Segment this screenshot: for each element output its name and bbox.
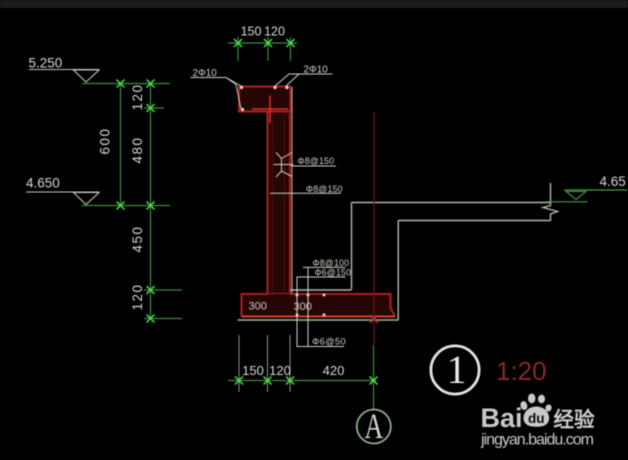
svg-text:A: A [364,406,383,446]
svg-text:120: 120 [264,25,285,39]
svg-text:150: 150 [241,25,262,39]
svg-text:5.250: 5.250 [29,56,63,71]
svg-text:120: 120 [130,283,145,310]
svg-text:450: 450 [130,225,145,252]
svg-text:300: 300 [294,301,312,313]
svg-text:120: 120 [130,83,145,110]
svg-text:480: 480 [130,136,145,163]
svg-text:120: 120 [269,363,291,378]
svg-text:Φ8@150: Φ8@150 [306,184,343,194]
svg-text:du: du [528,411,545,426]
svg-text:600: 600 [98,127,113,154]
svg-text:150: 150 [242,363,264,378]
svg-text:420: 420 [323,363,345,378]
svg-text:1:20: 1:20 [496,356,547,386]
svg-text:Φ8@100: Φ8@100 [313,258,350,268]
svg-text:300: 300 [249,301,267,313]
svg-text:Φ6@150: Φ6@150 [315,268,352,278]
svg-text:经验: 经验 [554,408,595,432]
svg-text:Φ8@150: Φ8@150 [298,156,335,166]
svg-text:jingyan.baidu.com: jingyan.baidu.com [480,432,594,449]
svg-text:Bai: Bai [481,403,523,433]
svg-text:4.650: 4.650 [26,176,60,191]
svg-text:Φ6@50: Φ6@50 [312,337,346,347]
svg-text:4.65: 4.65 [600,174,626,189]
svg-text:1: 1 [447,347,467,392]
